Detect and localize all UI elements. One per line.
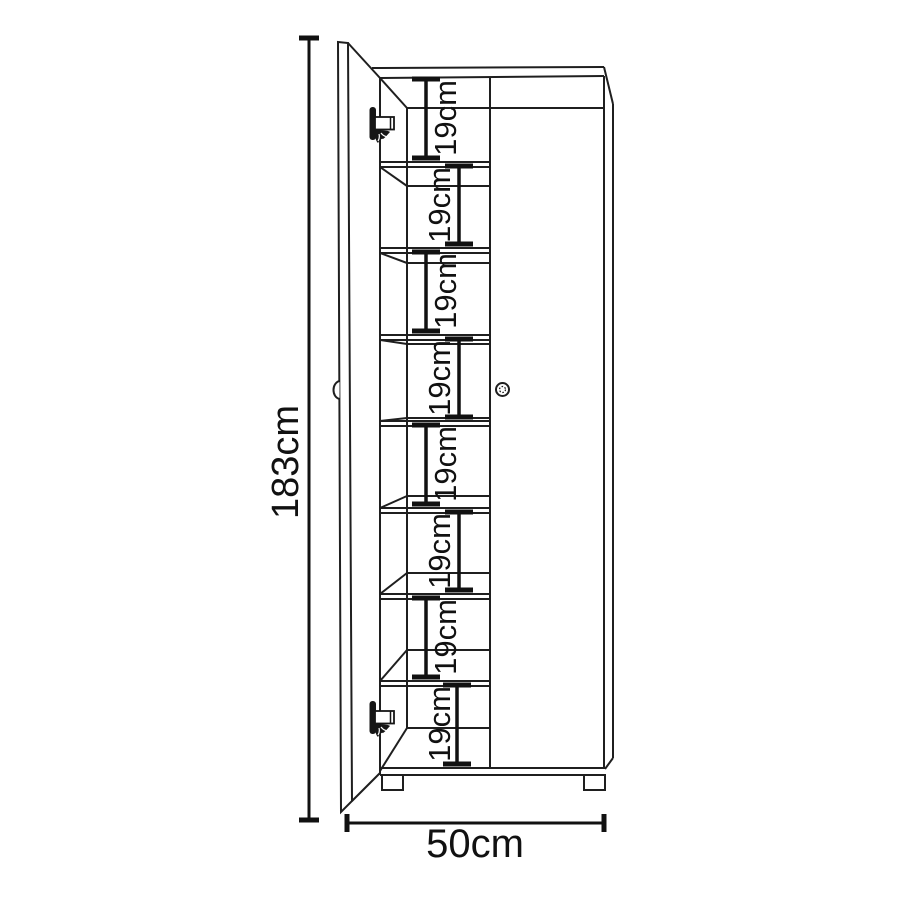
right-door-knob (496, 383, 509, 396)
compartment-dimension-1: 19cm (412, 79, 463, 158)
compartment-dimension-4: 19cm (422, 339, 473, 417)
compartment-5-label: 19cm (428, 426, 463, 502)
bottom-right-perspective-edge (605, 758, 613, 769)
top-right-perspective-edge (604, 67, 613, 104)
compartment-dimension-6: 19cm (422, 512, 473, 590)
compartment-dimension-7: 19cm (412, 598, 463, 677)
open-door-panel (338, 42, 352, 812)
compartment-8-label: 19cm (422, 686, 457, 762)
height-dimension-label: 183cm (265, 405, 307, 519)
open-door-top-edge (348, 43, 380, 78)
open-door-bottom-edge (352, 773, 380, 801)
hinge-bottom-icon (370, 701, 395, 737)
compartment-4-label: 19cm (422, 340, 457, 416)
compartment-2-label: 19cm (422, 167, 457, 243)
compartment-7-label: 19cm (428, 599, 463, 675)
compartment-dimension-2: 19cm (422, 166, 473, 244)
right-foot (584, 775, 605, 790)
diagram-canvas: 183cm 50cm (0, 0, 900, 900)
width-dimension: 50cm (347, 814, 604, 866)
compartment-6-label: 19cm (422, 513, 457, 589)
open-door-knob (334, 381, 340, 399)
compartment-dimension-5: 19cm (412, 425, 463, 504)
open-left-door (334, 42, 381, 812)
width-dimension-label: 50cm (426, 822, 524, 866)
hinge-top-icon (370, 107, 395, 143)
height-dimension: 183cm (265, 38, 319, 820)
interior-bottom-left-diagonal (380, 728, 407, 771)
cabinet-dimension-diagram: 183cm 50cm (0, 0, 900, 900)
compartment-3-label: 19cm (428, 253, 463, 329)
left-foot (382, 775, 403, 790)
compartment-1-label: 19cm (428, 80, 463, 156)
top-panel-outer-edge (372, 67, 604, 68)
interior-top-left-diagonal (380, 78, 407, 108)
closed-right-door (490, 77, 509, 768)
compartment-dimension-8: 19cm (422, 685, 471, 764)
